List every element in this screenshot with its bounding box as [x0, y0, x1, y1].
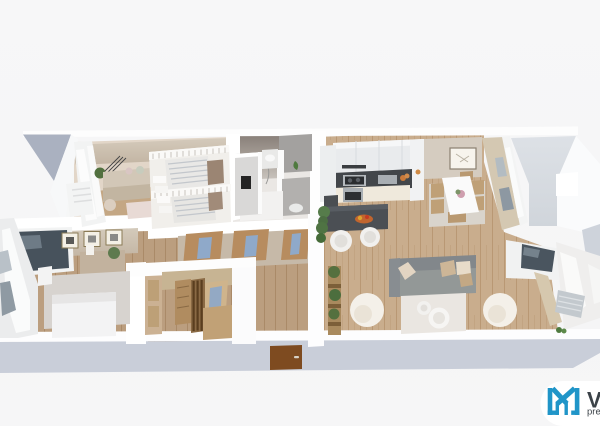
svg-text:pre s: pre s	[587, 407, 600, 418]
